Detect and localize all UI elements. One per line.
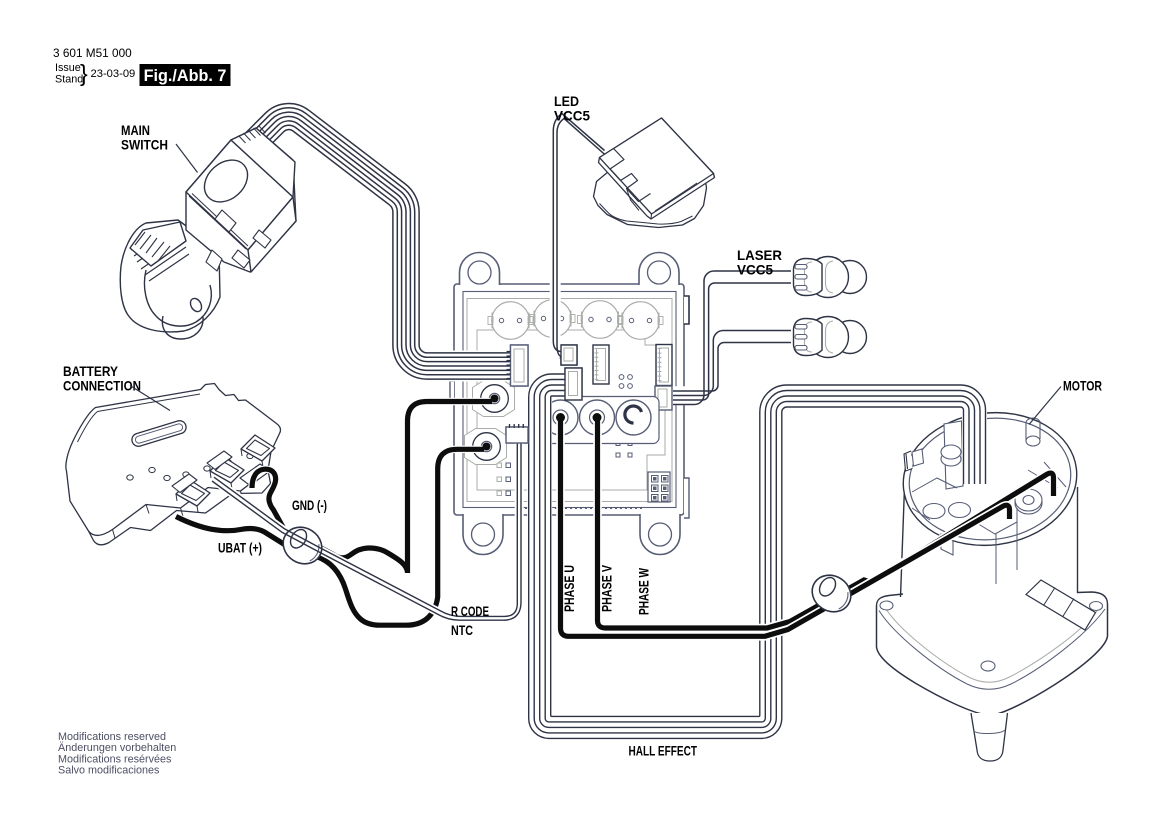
svg-text:R CODE: R CODE (451, 603, 489, 619)
svg-text:GND (-): GND (-) (292, 497, 327, 513)
svg-text:Salvo modificaciones: Salvo modificaciones (58, 765, 160, 777)
svg-text:VCC5: VCC5 (737, 262, 773, 278)
svg-text:3 601 M51 000: 3 601 M51 000 (53, 46, 132, 60)
svg-text:23-03-09: 23-03-09 (91, 68, 136, 80)
svg-text:SWITCH: SWITCH (121, 137, 168, 153)
svg-text:CONNECTION: CONNECTION (63, 378, 141, 394)
svg-text:Modifications resérvées: Modifications resérvées (58, 753, 172, 765)
svg-text:VCC5: VCC5 (554, 108, 590, 124)
svg-text:MOTOR: MOTOR (1063, 378, 1102, 394)
svg-text:Fig./Abb. 7: Fig./Abb. 7 (144, 67, 227, 85)
svg-text:}: } (80, 60, 88, 86)
svg-text:NTC: NTC (451, 622, 473, 638)
svg-text:PHASE W: PHASE W (636, 567, 652, 615)
svg-text:PHASE U: PHASE U (561, 565, 577, 612)
svg-text:Stand: Stand (55, 74, 83, 86)
svg-text:PHASE V: PHASE V (599, 564, 615, 612)
svg-text:Änderungen vorbehalten: Änderungen vorbehalten (58, 742, 176, 754)
svg-text:UBAT (+): UBAT (+) (218, 540, 262, 556)
svg-text:Modifications reserved: Modifications reserved (58, 731, 166, 743)
svg-text:HALL EFFECT: HALL EFFECT (629, 743, 698, 759)
svg-text:Issue: Issue (55, 62, 81, 74)
